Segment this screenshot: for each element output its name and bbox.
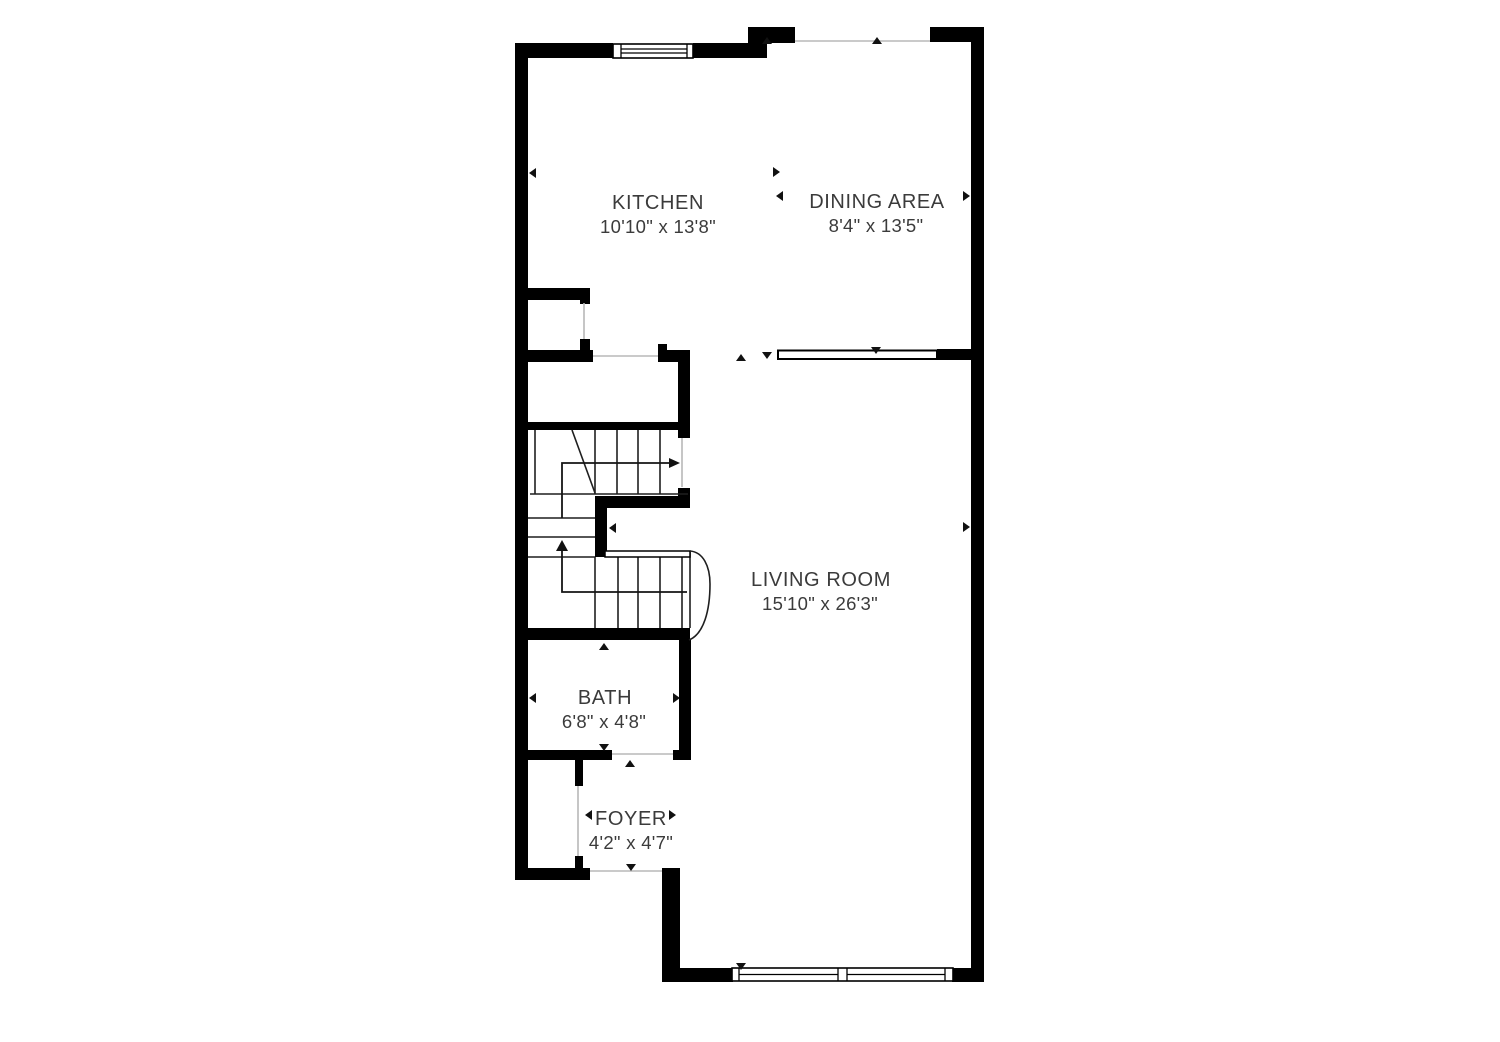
measure-arrow-icon [609, 523, 616, 533]
stair-direction-arrow [562, 463, 670, 518]
room-label-living-room: LIVING ROOM [751, 569, 891, 591]
measure-arrow-icon [599, 643, 609, 650]
wall-landing-right [678, 362, 690, 423]
wall-hall-stub [658, 344, 667, 350]
measure-arrow-icon [736, 354, 746, 361]
room-label-kitchen: KITCHEN [612, 192, 704, 214]
wall-stair-mid-vertical [595, 496, 607, 557]
room-label-dining-area: DINING AREA [809, 191, 945, 213]
stair-curved-rail [689, 551, 710, 640]
measure-arrow-icon [762, 352, 772, 359]
wall-closet-cap-bottom [580, 339, 590, 350]
wall-closet-cap-top [580, 300, 590, 304]
wall-right [971, 27, 984, 981]
wall-closet-bottom [515, 350, 593, 362]
wall-divider-stub [937, 349, 971, 360]
wall-band-stub [678, 430, 690, 438]
wall-bath-bottom-right [673, 750, 691, 760]
kitchen-window-icon [613, 44, 693, 58]
room-label-foyer: FOYER [595, 808, 667, 830]
wall-bottom-right [952, 968, 984, 982]
measure-arrow-icon [673, 693, 680, 703]
wall-hall-right [658, 350, 690, 362]
measure-arrow-icon [963, 191, 970, 201]
wall-bath-right [679, 640, 691, 750]
wall-stair-band [515, 422, 690, 430]
room-label-bath: BATH [578, 687, 632, 709]
measure-arrow-icon [773, 167, 780, 177]
walls [515, 27, 984, 982]
wall-bath-bottom-left [515, 750, 612, 760]
measure-arrow-icon [529, 693, 536, 703]
stair-winder-diagonal [572, 430, 595, 493]
wall-stair-mid-cap [678, 488, 690, 508]
room-dims-bath: 6'8" x 4'8" [562, 711, 646, 732]
room-dims-dining-area: 8'4" x 13'5" [829, 215, 924, 236]
half-wall-counter [778, 351, 937, 360]
measure-arrow-icon [625, 760, 635, 767]
wall-entry-side [662, 868, 680, 982]
wall-stair-mid-horizontal [595, 496, 688, 508]
wall-closet-top [515, 288, 590, 300]
measure-arrow-icon [599, 744, 609, 751]
measure-arrow-icon [669, 810, 676, 820]
wall-foyer-left-lower [575, 856, 583, 868]
room-dims-living-room: 15'10" x 26'3" [762, 593, 878, 614]
stair-arrowhead-icon [669, 458, 680, 468]
measure-arrow-icon [585, 810, 592, 820]
wall-bottom-left [662, 968, 733, 982]
measure-arrow-icon [776, 191, 783, 201]
stair-arrowhead-icon [556, 540, 568, 551]
living-room-window-icon [732, 968, 953, 981]
wall-top-c [748, 27, 795, 43]
wall-foyer-bottom [515, 868, 590, 880]
wall-foyer-left-upper [575, 760, 583, 786]
floorplan-canvas: KITCHEN 10'10" x 13'8" DINING AREA 8'4" … [0, 0, 1500, 1042]
measure-arrow-icon [529, 168, 536, 178]
floorplan-page: KITCHEN 10'10" x 13'8" DINING AREA 8'4" … [0, 0, 1500, 1042]
measure-arrow-icon [963, 522, 970, 532]
stair-rail [605, 551, 690, 557]
door-openings [578, 41, 930, 871]
wall-bath-top [515, 628, 690, 640]
wall-top-a [515, 43, 613, 58]
room-dims-kitchen: 10'10" x 13'8" [600, 216, 716, 237]
room-dims-foyer: 4'2" x 4'7" [589, 832, 673, 853]
measure-arrow-icon [626, 864, 636, 871]
